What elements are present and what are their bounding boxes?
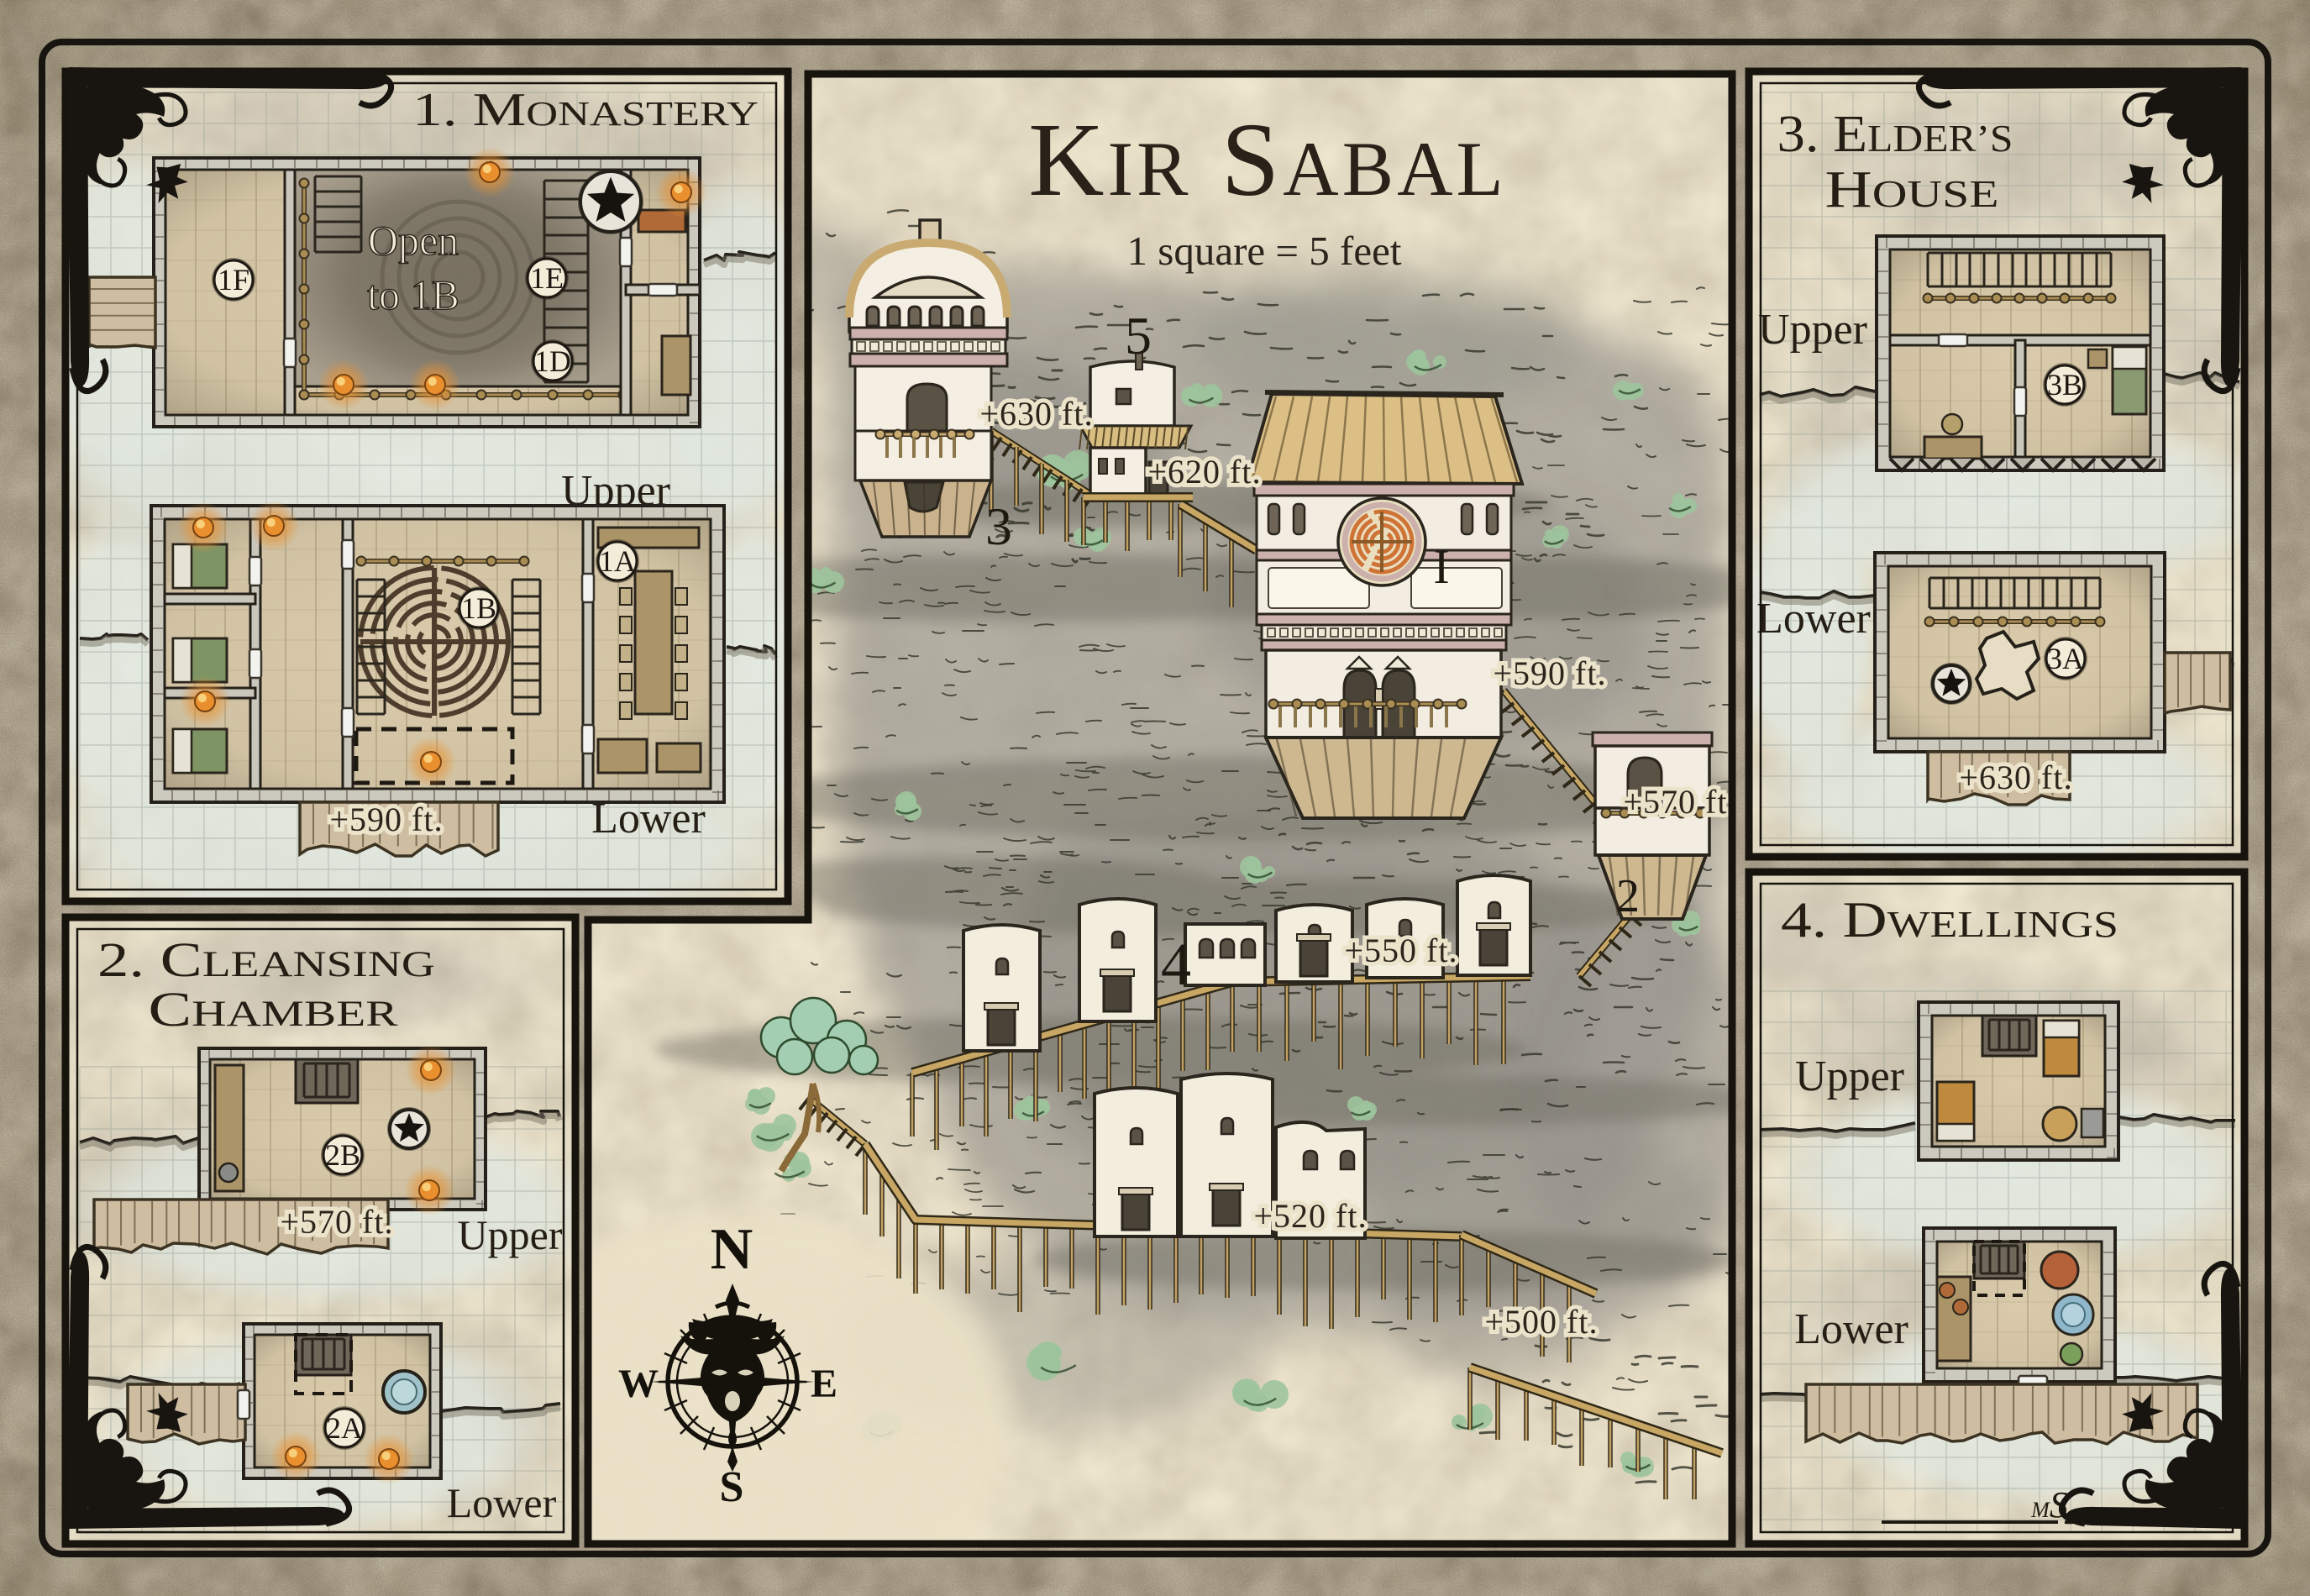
svg-text:Open: Open	[368, 217, 459, 264]
svg-text:Lower: Lower	[1794, 1305, 1908, 1353]
svg-text:+570 ft.: +570 ft.	[1624, 783, 1737, 821]
svg-text:3B: 3B	[2047, 368, 2082, 402]
svg-text:1B: 1B	[461, 591, 496, 625]
svg-text:S: S	[720, 1463, 744, 1511]
svg-text:E: E	[811, 1362, 837, 1406]
svg-text:Lower: Lower	[447, 1479, 557, 1526]
svg-text:3: 3	[985, 496, 1012, 556]
svg-text:1 square = 5 feet: 1 square = 5 feet	[1127, 228, 1402, 274]
svg-text:5: 5	[1125, 306, 1152, 365]
svg-text:Lower: Lower	[1756, 595, 1871, 643]
svg-text:+520 ft.: +520 ft.	[1254, 1197, 1368, 1235]
svg-text:1D: 1D	[534, 344, 571, 378]
svg-text:3A: 3A	[2047, 642, 2084, 675]
svg-text:I: I	[1433, 539, 1449, 594]
svg-text:1A: 1A	[599, 544, 636, 578]
svg-text:W: W	[618, 1362, 659, 1406]
svg-text:+590 ft.: +590 ft.	[330, 801, 444, 838]
svg-text:Upper: Upper	[458, 1211, 563, 1258]
svg-text:+570 ft.: +570 ft.	[281, 1203, 394, 1241]
svg-text:+500 ft.: +500 ft.	[1485, 1303, 1599, 1341]
svg-text:Upper: Upper	[1795, 1053, 1904, 1100]
svg-text:+630 ft.: +630 ft.	[1960, 759, 2073, 796]
svg-text:+590 ft.: +590 ft.	[1494, 654, 1607, 692]
svg-text:2A: 2A	[326, 1411, 363, 1445]
svg-text:2: 2	[1616, 870, 1640, 922]
svg-text:+550 ft.: +550 ft.	[1345, 932, 1458, 969]
svg-text:+630 ft.: +630 ft.	[980, 395, 1094, 433]
svg-text:1E: 1E	[530, 261, 564, 295]
svg-text:to 1B: to 1B	[367, 271, 459, 318]
svg-text:Lower: Lower	[591, 795, 706, 843]
svg-text:N: N	[711, 1217, 753, 1282]
svg-text:+620 ft.: +620 ft.	[1148, 453, 1262, 491]
svg-text:1F: 1F	[218, 263, 249, 297]
svg-text:2B: 2B	[325, 1138, 360, 1172]
svg-text:Upper: Upper	[1758, 306, 1867, 354]
svg-text:4: 4	[1161, 931, 1191, 998]
